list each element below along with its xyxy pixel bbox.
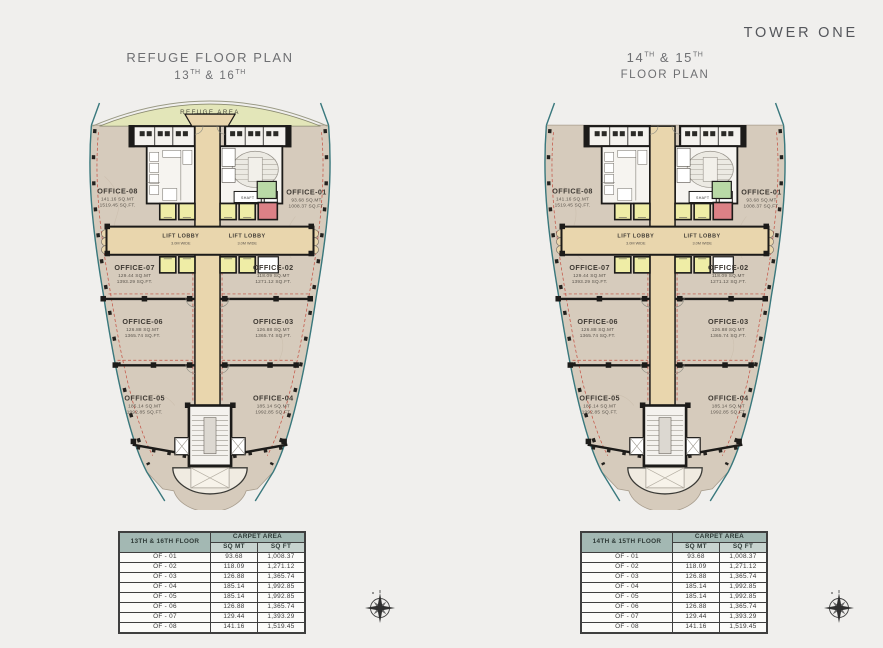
office-08-name: OFFICE-08	[552, 186, 593, 195]
svg-text:126.88 SQ.MT: 126.88 SQ.MT	[581, 327, 614, 333]
shaft-label: SHAFT	[241, 196, 255, 200]
office-02-name: OFFICE-02	[708, 263, 749, 272]
table-row: OF - 05185.141,992.85	[581, 593, 767, 603]
office-06-name: OFFICE-06	[122, 317, 163, 326]
table-row: OF - 08141.161,519.45	[119, 623, 305, 634]
svg-text:1365.74 SQ.FT.: 1365.74 SQ.FT.	[580, 333, 616, 339]
svg-text:129.44 SQ.MT: 129.44 SQ.MT	[118, 273, 151, 279]
svg-text:1365.74 SQ.FT.: 1365.74 SQ.FT.	[710, 333, 746, 339]
typical-floor-plan: SHAFT	[539, 96, 791, 510]
right-plan-title: 14TH & 15TH FLOOR PLAN	[539, 50, 791, 81]
carpet-area-table-14-15: 14TH & 15TH FLOOR CARPET AREA SQ MT SQ F…	[580, 531, 768, 634]
central-corridor	[195, 114, 220, 405]
svg-text:1365.74 SQ.FT.: 1365.74 SQ.FT.	[255, 333, 291, 339]
svg-text:126.88 SQ.MT: 126.88 SQ.MT	[712, 327, 745, 333]
carpet-area-table-13-16: 13TH & 16TH FLOOR CARPET AREA SQ MT SQ F…	[118, 531, 306, 634]
svg-text:1008.37 SQ.FT.: 1008.37 SQ.FT.	[744, 204, 780, 210]
lift-lobby-label-east: LIFT LOBBY	[229, 234, 266, 240]
table-carpet-header: CARPET AREA	[211, 532, 306, 543]
lift-lobby-width-west: 3.0M WIDE	[171, 242, 191, 246]
shaft-label: SHAFT	[696, 196, 710, 200]
table-sqmt-header: SQ MT	[673, 543, 720, 553]
svg-text:141.16 SQ.MT: 141.16 SQ.MT	[556, 197, 589, 203]
svg-text:185.14 SQ.MT: 185.14 SQ.MT	[128, 404, 161, 410]
table-row: OF - 08141.161,519.45	[581, 623, 767, 634]
svg-text:185.14 SQ.MT: 185.14 SQ.MT	[712, 404, 745, 410]
office-01-name: OFFICE-01	[741, 187, 782, 196]
green-service-room	[712, 181, 731, 198]
fire-lift	[258, 203, 277, 220]
svg-text:1519.45 SQ.FT.: 1519.45 SQ.FT.	[555, 203, 591, 209]
lift-lobby-band	[562, 227, 769, 255]
right-plan-title-line2: FLOOR PLAN	[539, 69, 791, 81]
table-row: OF - 07129.441,393.29	[119, 613, 305, 623]
svg-text:1365.74 SQ.FT.: 1365.74 SQ.FT.	[125, 333, 161, 339]
office-07-name: OFFICE-07	[569, 263, 610, 272]
lift-lobby-width-west: 3.0M WIDE	[626, 242, 646, 246]
svg-text:141.16 SQ.MT: 141.16 SQ.MT	[101, 197, 134, 203]
table-row: OF - 03126.881,365.74	[119, 573, 305, 583]
left-plan-title: REFUGE FLOOR PLAN 13TH & 16TH	[84, 50, 336, 82]
table-row: OF - 03126.881,365.74	[581, 573, 767, 583]
lift-lobby-label-west: LIFT LOBBY	[617, 234, 654, 240]
svg-text:93.68 SQ.MT: 93.68 SQ.MT	[291, 198, 321, 204]
svg-text:1008.37 SQ.FT.: 1008.37 SQ.FT.	[289, 204, 325, 210]
lift-lobby-band	[107, 227, 314, 255]
left-plan-title-line2: 13TH & 16TH	[84, 69, 336, 82]
office-05-name: OFFICE-05	[124, 393, 165, 402]
left-plan-title-line1: REFUGE FLOOR PLAN	[84, 50, 336, 65]
compass-rose-icon	[360, 586, 400, 630]
table-row: OF - 05185.141,992.85	[119, 593, 305, 603]
svg-text:126.88 SQ.MT: 126.88 SQ.MT	[126, 327, 159, 333]
svg-text:1519.45 SQ.FT.: 1519.45 SQ.FT.	[100, 203, 136, 209]
office-02-name: OFFICE-02	[253, 263, 294, 272]
lift-lobby-label-east: LIFT LOBBY	[684, 234, 721, 240]
table-row: OF - 02118.091,271.12	[581, 563, 767, 573]
right-plan-title-line1: 14TH & 15TH	[539, 50, 791, 65]
table-floor-header: 14TH & 15TH FLOOR	[581, 532, 673, 553]
central-corridor	[650, 126, 675, 405]
office-07-name: OFFICE-07	[114, 263, 155, 272]
svg-text:1992.85 SQ.FT.: 1992.85 SQ.FT.	[127, 410, 163, 416]
table-row: OF - 02118.091,271.12	[119, 563, 305, 573]
lift-lobby-label-west: LIFT LOBBY	[162, 234, 199, 240]
table-row: OF - 0193.681,008.37	[119, 553, 305, 563]
svg-text:118.09 SQ.MT: 118.09 SQ.MT	[257, 273, 290, 279]
svg-text:1393.29 SQ.FT.: 1393.29 SQ.FT.	[117, 279, 153, 285]
svg-text:1271.12 SQ.FT.: 1271.12 SQ.FT.	[710, 279, 746, 285]
svg-text:1992.85 SQ.FT.: 1992.85 SQ.FT.	[582, 410, 618, 416]
svg-text:1271.12 SQ.FT.: 1271.12 SQ.FT.	[255, 279, 291, 285]
office-04-name: OFFICE-04	[253, 393, 294, 402]
lift-lobby-width-east: 3.0M WIDE	[692, 242, 712, 246]
office-06-name: OFFICE-06	[577, 317, 618, 326]
refuge-floor-plan: REFUGE AREA	[84, 96, 336, 510]
table-carpet-header: CARPET AREA	[673, 532, 768, 543]
table-sqmt-header: SQ MT	[211, 543, 258, 553]
table-row: OF - 07129.441,393.29	[581, 613, 767, 623]
table-row: OF - 0193.681,008.37	[581, 553, 767, 563]
fire-lift	[713, 203, 732, 220]
svg-text:129.44 SQ.MT: 129.44 SQ.MT	[573, 273, 606, 279]
refuge-entry	[185, 114, 235, 126]
office-03-name: OFFICE-03	[708, 317, 749, 326]
tower-title: TOWER ONE	[744, 25, 858, 41]
table-sqft-header: SQ FT	[720, 543, 768, 553]
table-floor-header: 13TH & 16TH FLOOR	[119, 532, 211, 553]
table-row: OF - 04185.141,992.85	[119, 583, 305, 593]
office-05-name: OFFICE-05	[579, 393, 620, 402]
svg-text:185.14 SQ.MT: 185.14 SQ.MT	[257, 404, 290, 410]
svg-text:1992.85 SQ.FT.: 1992.85 SQ.FT.	[255, 410, 291, 416]
table-row: OF - 04185.141,992.85	[581, 583, 767, 593]
svg-text:185.14 SQ.MT: 185.14 SQ.MT	[583, 404, 616, 410]
table-sqft-header: SQ FT	[258, 543, 306, 553]
office-04-name: OFFICE-04	[708, 393, 749, 402]
svg-text:118.09 SQ.MT: 118.09 SQ.MT	[712, 273, 745, 279]
office-01-name: OFFICE-01	[286, 187, 327, 196]
svg-text:1393.29 SQ.FT.: 1393.29 SQ.FT.	[572, 279, 608, 285]
green-service-room	[257, 181, 276, 198]
compass-rose-icon	[819, 586, 859, 630]
svg-text:1992.85 SQ.FT.: 1992.85 SQ.FT.	[710, 410, 746, 416]
lift-lobby-width-east: 3.0M WIDE	[237, 242, 257, 246]
office-03-name: OFFICE-03	[253, 317, 294, 326]
table-row: OF - 06126.881,365.74	[119, 603, 305, 613]
office-08-name: OFFICE-08	[97, 186, 138, 195]
svg-text:126.88 SQ.MT: 126.88 SQ.MT	[257, 327, 290, 333]
table-row: OF - 06126.881,365.74	[581, 603, 767, 613]
svg-text:93.68 SQ.MT: 93.68 SQ.MT	[746, 198, 776, 204]
